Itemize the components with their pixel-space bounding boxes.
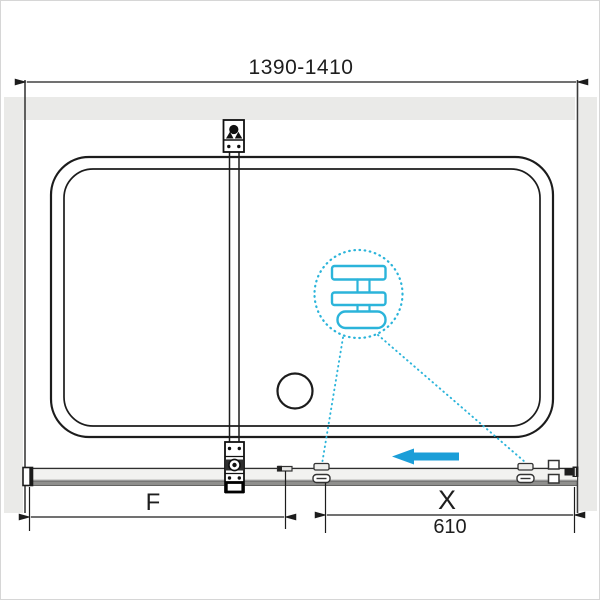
door-edge-clip-end — [278, 466, 283, 472]
bracket-screw — [228, 476, 231, 479]
wall-bracket-bottom — [225, 442, 244, 492]
rail-body — [32, 469, 577, 480]
bottom-rail — [23, 468, 577, 486]
drain-circle — [278, 374, 313, 409]
bracket-screw — [238, 476, 241, 479]
left-wall — [4, 97, 23, 513]
bracket-screw — [227, 145, 230, 148]
wall-profile-screw-lower — [549, 475, 560, 484]
door-width-value: 610 — [433, 516, 466, 538]
bracket-screw — [237, 145, 240, 148]
detail-rail-bar — [332, 293, 386, 306]
diagram-canvas: 1390-1410 — [0, 0, 600, 600]
overall-width-dimension: 1390-1410 — [27, 56, 576, 82]
bracket-screw — [228, 447, 231, 450]
roller-upper-left — [314, 464, 329, 471]
overall-width-dimension-label: 1390-1410 — [249, 56, 354, 79]
back-wall — [4, 97, 575, 120]
right-wall — [579, 97, 597, 511]
detail-upper-guide — [332, 266, 386, 280]
technical-drawing: 1390-1410 — [1, 1, 599, 599]
wall-fitting-block — [565, 468, 573, 476]
wall-bracket-top — [224, 120, 245, 152]
bathtub-outline — [51, 157, 553, 437]
bracket-pivot — [229, 125, 238, 134]
wall-profile-screw-upper — [549, 461, 560, 470]
bracket-body — [224, 120, 245, 152]
bracket-screw — [238, 447, 241, 450]
fixed-panel-dimension-label: F — [146, 489, 161, 516]
detail-roller-capsule — [338, 312, 386, 329]
rail-lower-profile — [32, 481, 577, 486]
bracket-hinge-pin — [232, 463, 236, 467]
door-dimension-label: X — [438, 485, 456, 515]
slide-direction-arrow-icon — [392, 449, 459, 465]
bracket-foot — [226, 483, 243, 493]
roller-upper-right — [518, 464, 533, 471]
